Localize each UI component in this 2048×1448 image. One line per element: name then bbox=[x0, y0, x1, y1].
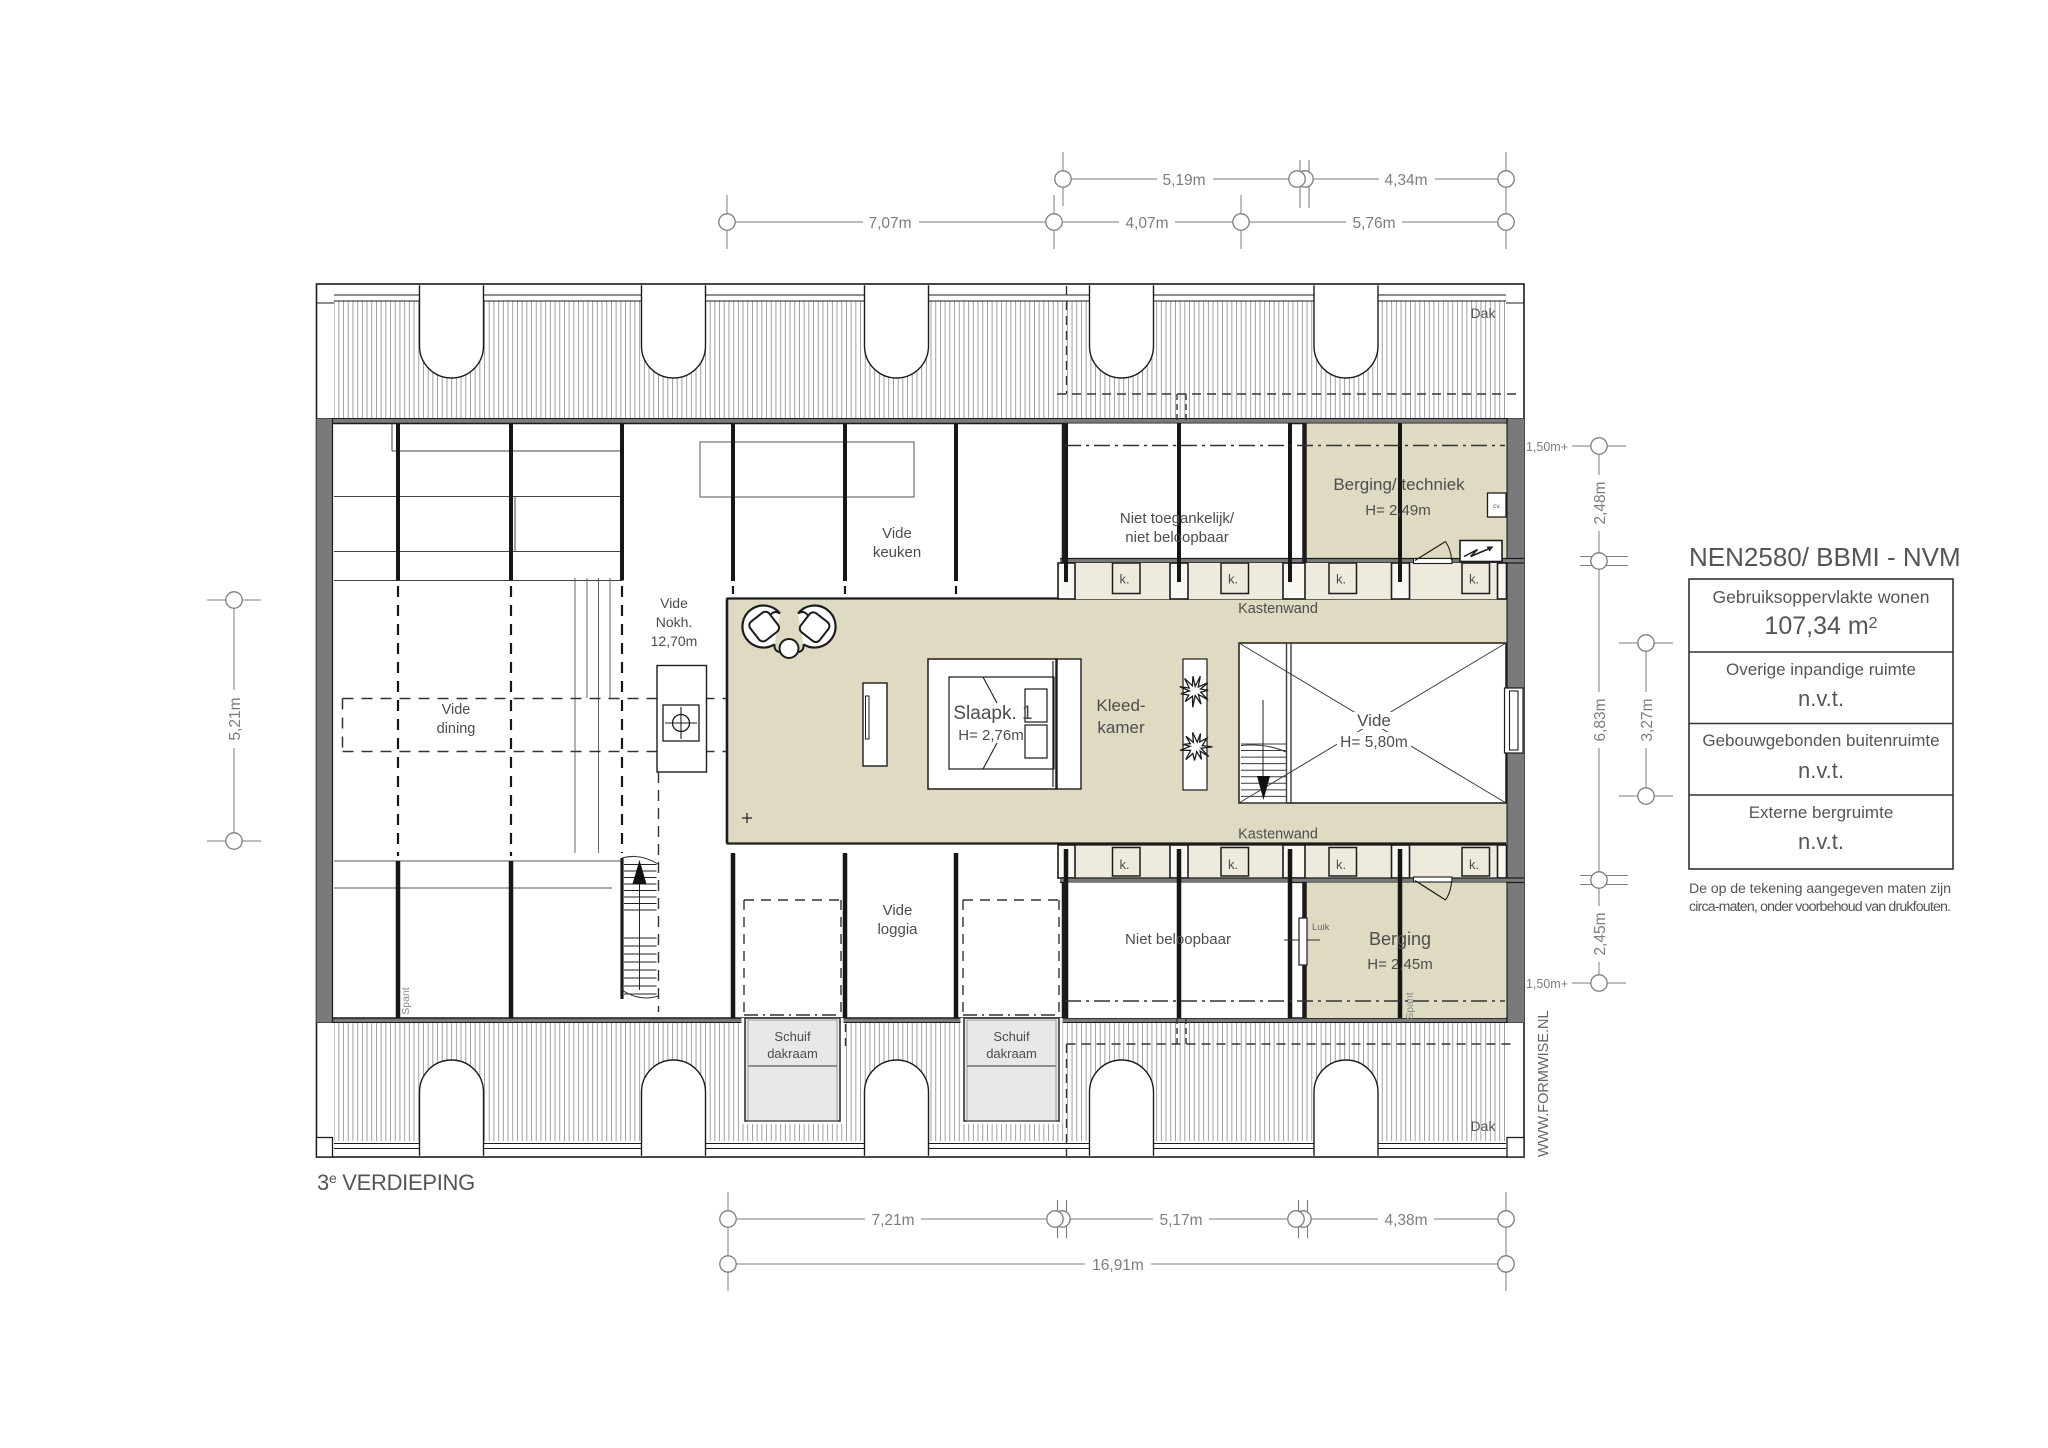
svg-text:Spant: Spant bbox=[400, 987, 412, 1015]
svg-text:Externe bergruimte: Externe bergruimte bbox=[1749, 803, 1894, 822]
svg-text:3e VERDIEPING: 3e VERDIEPING bbox=[317, 1170, 475, 1195]
svg-text:k.: k. bbox=[1228, 857, 1238, 872]
svg-text:cv.: cv. bbox=[1493, 503, 1501, 510]
svg-text:5,19m: 5,19m bbox=[1162, 172, 1205, 189]
svg-text:k.: k. bbox=[1469, 857, 1479, 872]
svg-text:dining: dining bbox=[437, 721, 476, 737]
svg-text:Overige inpandige ruimte: Overige inpandige ruimte bbox=[1726, 660, 1916, 679]
svg-text:Kastenwand: Kastenwand bbox=[1238, 827, 1318, 843]
svg-text:dakraam: dakraam bbox=[986, 1046, 1037, 1061]
svg-text:7,21m: 7,21m bbox=[871, 1212, 914, 1229]
svg-text:Vide: Vide bbox=[442, 702, 471, 718]
svg-text:Kastenwand: Kastenwand bbox=[1238, 601, 1318, 617]
svg-text:Kleed-: Kleed- bbox=[1096, 696, 1145, 715]
svg-text:4,38m: 4,38m bbox=[1384, 1212, 1427, 1229]
svg-text:Vide: Vide bbox=[883, 902, 913, 919]
svg-text:6,83m: 6,83m bbox=[1592, 698, 1609, 741]
svg-text:Vide: Vide bbox=[660, 595, 688, 611]
svg-text:Niet beloopbaar: Niet beloopbaar bbox=[1125, 931, 1231, 948]
svg-text:Dak: Dak bbox=[1471, 1118, 1497, 1134]
svg-text:H= 2,76m: H= 2,76m bbox=[958, 727, 1023, 744]
svg-text:107,34 m2: 107,34 m2 bbox=[1764, 612, 1877, 640]
svg-text:loggia: loggia bbox=[877, 921, 918, 938]
svg-text:n.v.t.: n.v.t. bbox=[1798, 829, 1844, 854]
svg-text:Gebouwgebonden buitenruimte: Gebouwgebonden buitenruimte bbox=[1702, 731, 1939, 750]
svg-text:k.: k. bbox=[1336, 572, 1346, 587]
svg-text:Luik: Luik bbox=[1312, 922, 1330, 933]
svg-text:Vide: Vide bbox=[882, 525, 912, 542]
svg-text:7,07m: 7,07m bbox=[868, 215, 911, 232]
svg-text:k.: k. bbox=[1336, 857, 1346, 872]
svg-text:k.: k. bbox=[1119, 857, 1129, 872]
svg-text:Slaapk. 1: Slaapk. 1 bbox=[953, 703, 1032, 724]
svg-text:keuken: keuken bbox=[873, 544, 921, 561]
svg-text:3,27m: 3,27m bbox=[1639, 698, 1656, 741]
svg-text:De op de tekening aangegeven m: De op de tekening aangegeven maten zijn bbox=[1689, 881, 1951, 897]
svg-text:Spant: Spant bbox=[1404, 992, 1416, 1020]
svg-text:Vide: Vide bbox=[1357, 711, 1391, 730]
svg-text:k.: k. bbox=[1119, 572, 1129, 587]
svg-text:circa-maten, onder voorbehoud: circa-maten, onder voorbehoud van drukfo… bbox=[1689, 899, 1951, 915]
svg-text:H= 2,45m: H= 2,45m bbox=[1367, 956, 1432, 973]
svg-text:2,45m: 2,45m bbox=[1592, 912, 1609, 955]
svg-text:4,34m: 4,34m bbox=[1384, 172, 1427, 189]
svg-text:H= 2,49m: H= 2,49m bbox=[1365, 502, 1430, 519]
svg-text:Schuif: Schuif bbox=[774, 1029, 811, 1044]
svg-text:1,50m+: 1,50m+ bbox=[1526, 977, 1568, 991]
svg-text:niet beloopbaar: niet beloopbaar bbox=[1125, 529, 1228, 546]
svg-text:Nokh.: Nokh. bbox=[656, 614, 693, 630]
svg-text:Berging/ techniek: Berging/ techniek bbox=[1333, 475, 1465, 494]
svg-text:NEN2580/ BBMI - NVM: NEN2580/ BBMI - NVM bbox=[1689, 542, 1961, 572]
svg-text:k.: k. bbox=[1469, 572, 1479, 587]
svg-text:Dak: Dak bbox=[1471, 305, 1497, 321]
svg-text:Schuif: Schuif bbox=[993, 1029, 1030, 1044]
svg-text:5,76m: 5,76m bbox=[1352, 215, 1395, 232]
svg-text:kamer: kamer bbox=[1097, 718, 1145, 737]
svg-text:1,50m+: 1,50m+ bbox=[1526, 440, 1568, 454]
svg-text:5,17m: 5,17m bbox=[1159, 1212, 1202, 1229]
svg-text:WWW.FORMWISE.NL: WWW.FORMWISE.NL bbox=[1536, 1010, 1552, 1157]
svg-text:dakraam: dakraam bbox=[767, 1046, 818, 1061]
svg-text:Niet toegankelijk/: Niet toegankelijk/ bbox=[1120, 510, 1235, 527]
svg-text:2,48m: 2,48m bbox=[1592, 481, 1609, 524]
svg-text:Gebruiksoppervlakte wonen: Gebruiksoppervlakte wonen bbox=[1713, 587, 1930, 607]
svg-text:n.v.t.: n.v.t. bbox=[1798, 686, 1844, 711]
svg-text:16,91m: 16,91m bbox=[1092, 1257, 1144, 1274]
svg-text:4,07m: 4,07m bbox=[1125, 215, 1168, 232]
svg-text:5,21m: 5,21m bbox=[227, 697, 244, 740]
svg-text:H= 5,80m: H= 5,80m bbox=[1340, 734, 1408, 751]
svg-text:k.: k. bbox=[1228, 572, 1238, 587]
svg-text:n.v.t.: n.v.t. bbox=[1798, 758, 1844, 783]
svg-text:12,70m: 12,70m bbox=[651, 633, 698, 649]
svg-text:Berging: Berging bbox=[1369, 929, 1431, 949]
